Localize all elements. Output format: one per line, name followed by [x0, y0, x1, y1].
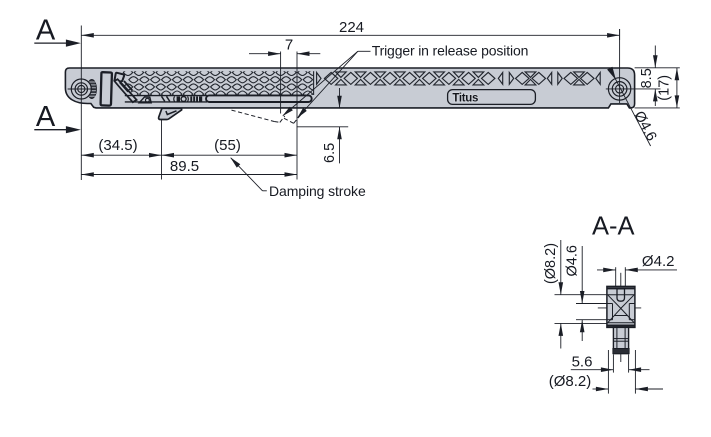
svg-text:6.5: 6.5: [322, 143, 338, 163]
svg-text:89.5: 89.5: [170, 158, 199, 175]
svg-text:(55): (55): [214, 137, 241, 154]
svg-text:8.5: 8.5: [639, 68, 655, 88]
svg-text:(34.5): (34.5): [98, 137, 137, 154]
svg-text:Ø4.2: Ø4.2: [642, 253, 675, 270]
svg-text:5.6: 5.6: [572, 354, 593, 371]
svg-text:Titus: Titus: [452, 92, 478, 104]
svg-text:Ø4.6: Ø4.6: [564, 245, 580, 276]
svg-text:(Ø8.2): (Ø8.2): [543, 243, 559, 284]
svg-text:A: A: [36, 101, 56, 133]
svg-text:A: A: [36, 14, 56, 46]
svg-text:A-A: A-A: [592, 213, 635, 241]
svg-text:224: 224: [339, 19, 364, 36]
svg-text:7: 7: [285, 37, 293, 54]
svg-text:(Ø8.2): (Ø8.2): [549, 373, 592, 390]
svg-text:Damping stroke: Damping stroke: [269, 183, 366, 199]
svg-text:(17): (17): [657, 75, 673, 101]
svg-text:Trigger in release position: Trigger in release position: [372, 42, 529, 58]
